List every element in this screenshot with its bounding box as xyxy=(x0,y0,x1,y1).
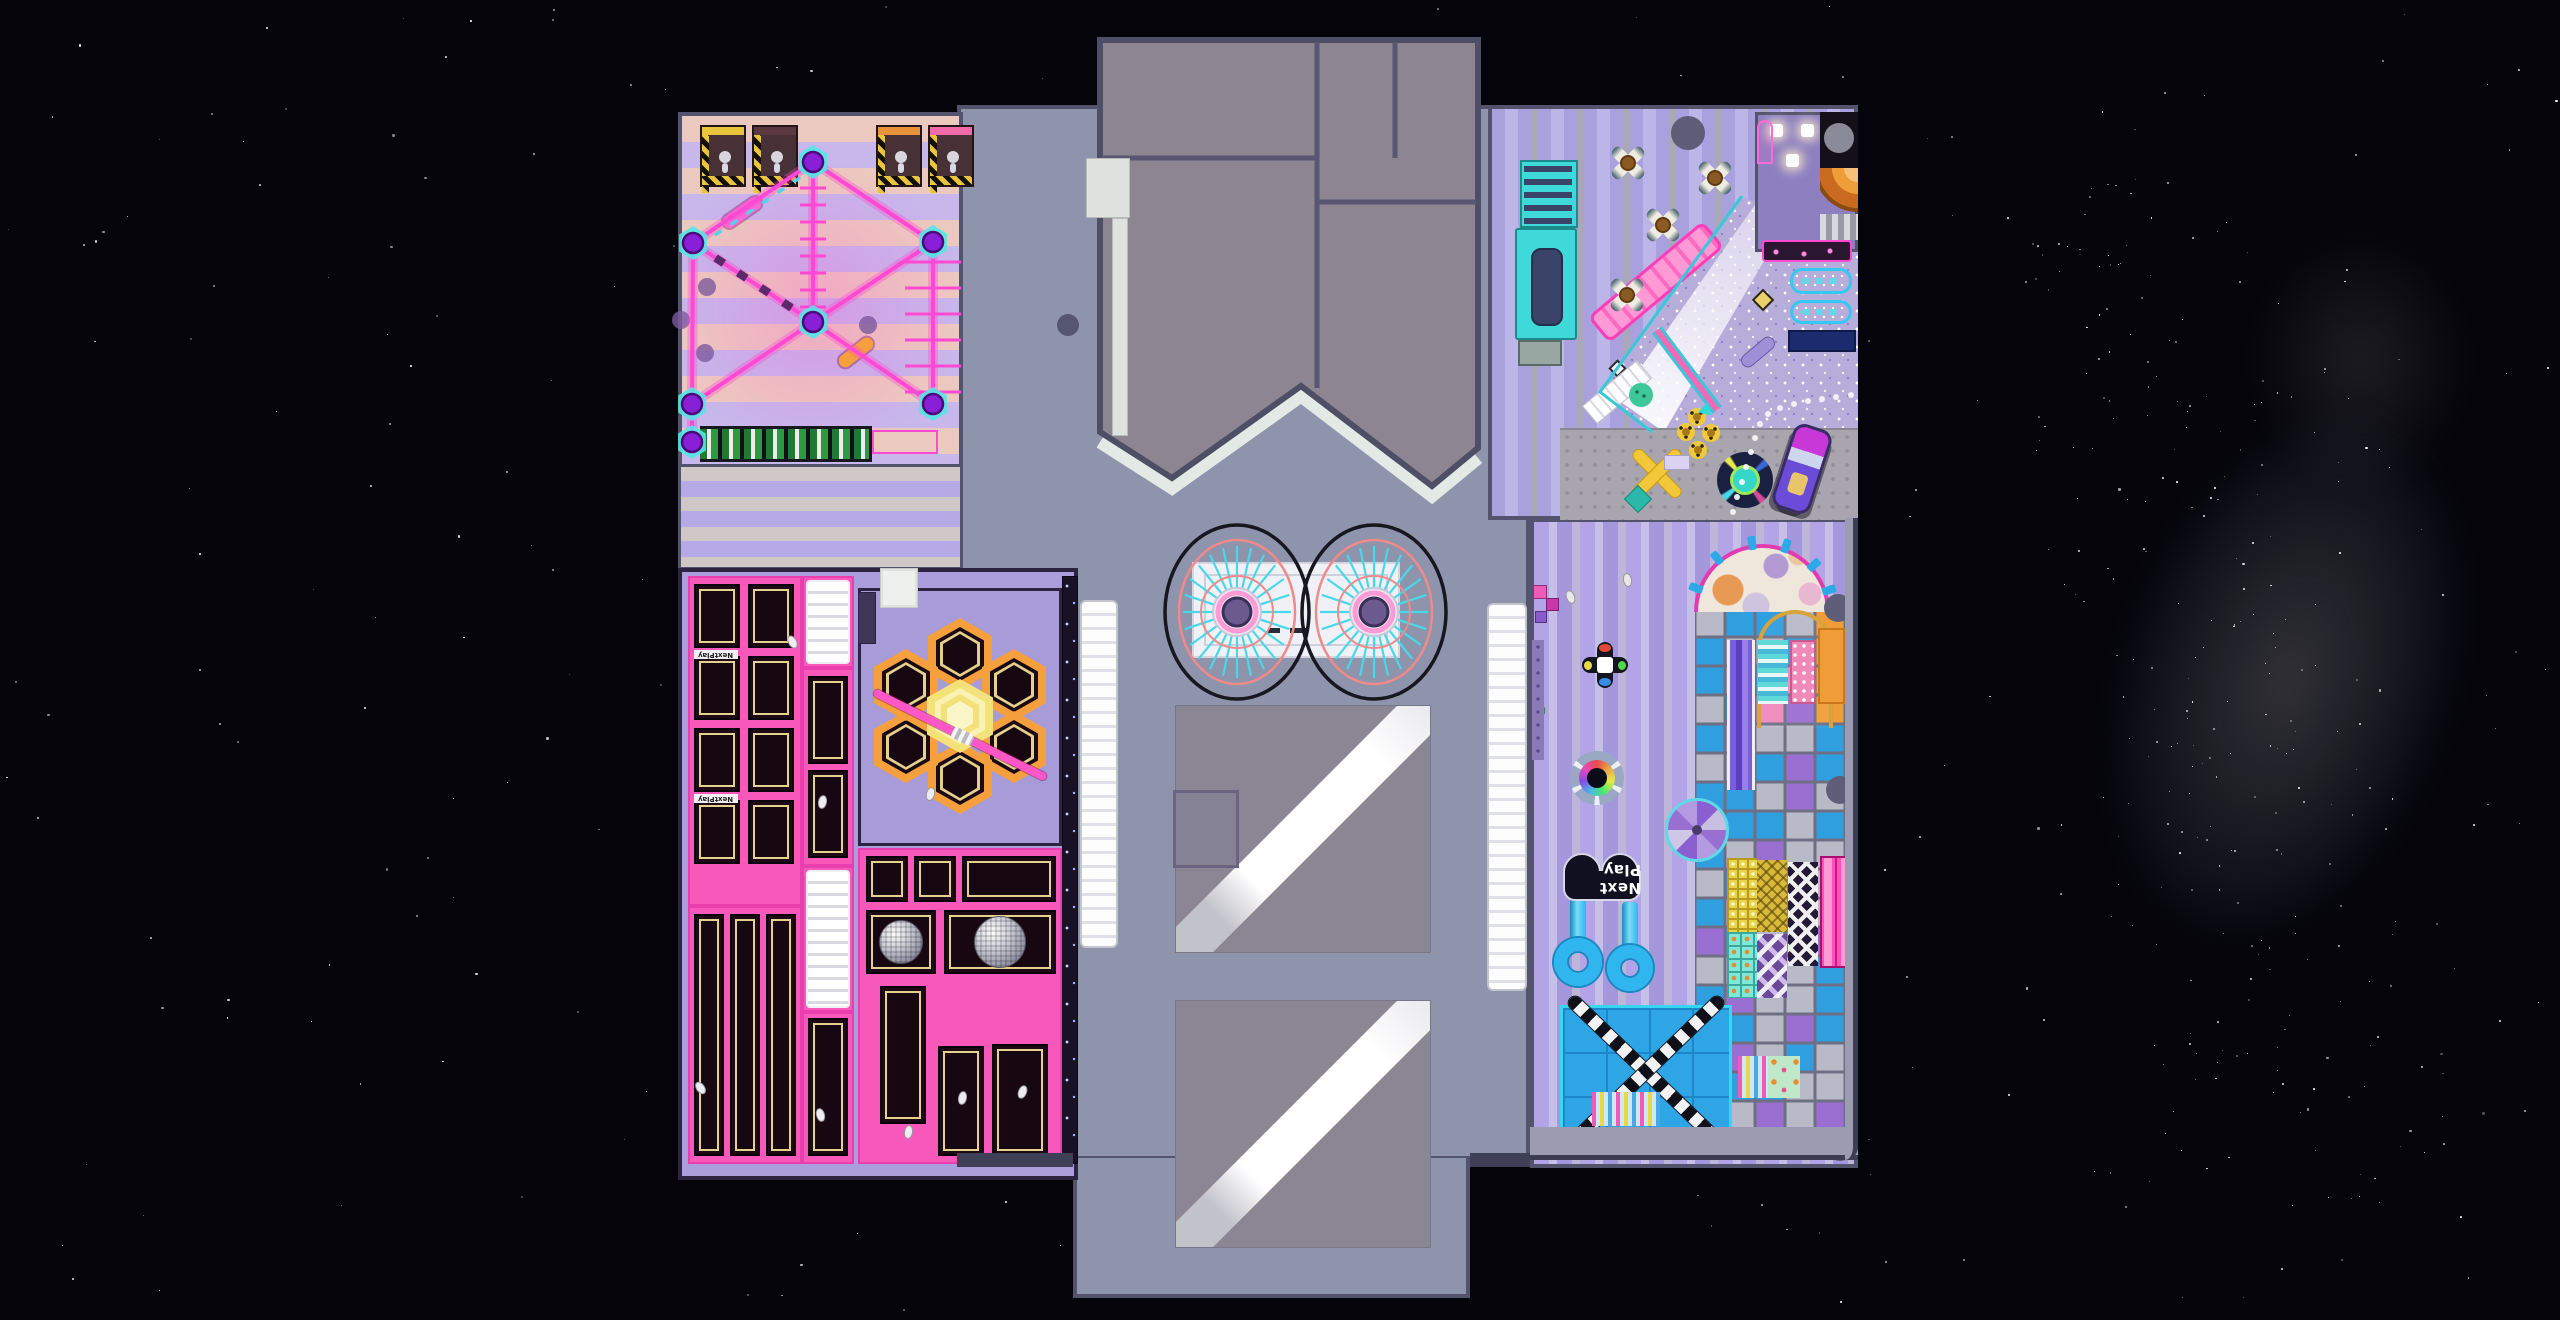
shelf-slat xyxy=(1524,166,1572,172)
flower-center xyxy=(1693,413,1701,421)
play-structure-cell xyxy=(1695,637,1725,666)
tube-slide-loop[interactable] xyxy=(1554,938,1602,986)
sparkle-wall xyxy=(1062,576,1078,1164)
climbing-ladder[interactable] xyxy=(700,426,872,462)
floor-dot xyxy=(859,316,877,334)
red-button xyxy=(1599,644,1611,652)
play-structure-cell xyxy=(1695,898,1725,927)
green-button xyxy=(1618,661,1626,670)
trampoline-bed xyxy=(880,986,926,1124)
trampoline-bed xyxy=(694,656,740,720)
teal-cone xyxy=(1698,401,1714,416)
person-icon xyxy=(719,151,731,163)
border-walkway xyxy=(1845,518,1858,1160)
neon-dashes xyxy=(1801,309,1843,314)
floor-dot xyxy=(672,311,690,329)
person-icon xyxy=(771,151,783,163)
play-structure-cell xyxy=(1695,695,1725,724)
play-structure-cell xyxy=(1755,811,1785,840)
kiosk-top-bar xyxy=(878,127,920,135)
person-icon xyxy=(895,151,907,163)
path-dot xyxy=(1765,411,1771,417)
quilted-bench-strip xyxy=(1080,600,1118,948)
shelf-slat xyxy=(1524,218,1572,224)
play-structure-cell xyxy=(1755,1101,1785,1130)
play-structure-cell xyxy=(1785,985,1815,1014)
play-structure-cell xyxy=(1755,1014,1785,1043)
play-cube xyxy=(1533,585,1547,599)
play-structure-cell xyxy=(1785,753,1815,782)
airbag-pad xyxy=(806,580,850,664)
flower-stool xyxy=(1677,423,1695,441)
play-panel-candy xyxy=(1738,1056,1768,1098)
play-structure-cell xyxy=(1815,1072,1845,1101)
shelf-slat xyxy=(1524,205,1572,211)
trampoline-bed xyxy=(748,728,794,792)
roof-walkway xyxy=(1112,218,1128,436)
kiosk-top-bar xyxy=(754,127,796,135)
person-icon xyxy=(898,163,904,173)
play-panel-tgrid xyxy=(1727,932,1757,998)
trampoline-bed xyxy=(748,800,794,864)
platform-label-mark xyxy=(1290,628,1306,633)
flower-stool xyxy=(1689,441,1707,459)
path-dot xyxy=(1757,421,1763,427)
path-dot xyxy=(1752,435,1758,441)
play-structure-cell xyxy=(1815,724,1845,753)
hazard-stripe xyxy=(930,176,972,185)
round-table xyxy=(1824,123,1854,153)
wave-slide-lanes[interactable] xyxy=(1727,640,1755,790)
wall-segment xyxy=(957,1153,1073,1167)
play-structure-cell xyxy=(1695,869,1725,898)
lit-table xyxy=(1786,154,1799,167)
quilted-bench-strip xyxy=(1487,603,1527,991)
play-structure-cell xyxy=(1695,666,1725,695)
pillar xyxy=(1671,116,1705,150)
person-icon xyxy=(774,163,780,173)
play-structure-cell xyxy=(1785,1101,1815,1130)
platform-label-mark xyxy=(1268,628,1280,633)
person-icon xyxy=(722,163,728,173)
play-panel-diam xyxy=(1757,934,1787,998)
hazard-stripe xyxy=(878,176,920,185)
lit-table xyxy=(1801,124,1814,137)
person-icon xyxy=(950,163,956,173)
disco-ball xyxy=(879,920,923,964)
play-cube xyxy=(1535,611,1547,623)
zone-stripe-band[interactable] xyxy=(678,464,963,570)
path-dot xyxy=(1730,509,1736,515)
play-panel-ygrid xyxy=(1727,858,1757,932)
play-structure-cell xyxy=(1815,1014,1845,1043)
kiosk-top-bar xyxy=(702,127,744,135)
path-dot xyxy=(1748,449,1754,455)
trampoline-bed xyxy=(914,856,956,902)
play-structure-cell xyxy=(1695,608,1725,637)
neon-dashes xyxy=(1801,278,1843,284)
trampoline-bed xyxy=(808,676,848,764)
ropes-kiosk xyxy=(928,125,974,187)
ramp-diagonal-stripe xyxy=(1175,1000,1431,1248)
play-structure-cell xyxy=(1785,724,1815,753)
neon-arcade-panel[interactable] xyxy=(1790,268,1852,294)
trampoline-bed xyxy=(730,914,760,1156)
path-dot xyxy=(1819,396,1825,402)
floor-dot xyxy=(698,278,716,296)
flower-center xyxy=(1682,428,1690,436)
building: NextPlayNextPlayNext Play xyxy=(0,0,2560,1320)
ropes-kiosk xyxy=(752,125,798,187)
navy-counter xyxy=(1788,330,1856,352)
flower-center xyxy=(1694,446,1702,454)
yellow-button xyxy=(1584,661,1592,670)
pillar xyxy=(1057,314,1079,336)
ride-platform-inner xyxy=(1204,574,1388,646)
play-structure-cell xyxy=(1785,782,1815,811)
play-panel-orange xyxy=(1818,628,1845,704)
wall-panel xyxy=(1532,640,1544,760)
neon-sign-frame xyxy=(1762,240,1852,262)
ladder-rail-outline xyxy=(872,430,938,454)
roof-walkway xyxy=(1086,158,1130,218)
path-dot xyxy=(1805,398,1811,404)
play-structure-cell xyxy=(1695,956,1725,985)
trampoline-bed xyxy=(808,770,848,858)
trampoline-bed xyxy=(694,584,740,648)
flower-stool xyxy=(1702,424,1720,442)
bed-label-text: NextPlay xyxy=(698,651,733,658)
play-structure-cell xyxy=(1755,753,1785,782)
play-structure-cell xyxy=(1785,1014,1815,1043)
pink-arch-decor xyxy=(1757,120,1773,164)
play-structure-cell xyxy=(1815,985,1845,1014)
candy-panel xyxy=(1592,1092,1660,1126)
desk-side-box xyxy=(1518,340,1562,366)
wall-segment xyxy=(1470,1153,1530,1167)
bed-label-strip: NextPlay xyxy=(694,794,738,803)
shelf-slat xyxy=(1524,192,1572,198)
play-structure-cell xyxy=(1785,811,1815,840)
hazard-stripe xyxy=(754,176,796,185)
airbag-pad xyxy=(806,870,850,1008)
desk-well xyxy=(1531,248,1563,326)
stair-ramp-block[interactable] xyxy=(1175,1000,1431,1248)
path-dot xyxy=(1743,464,1749,470)
path-dot xyxy=(1791,401,1797,407)
trampoline-bed xyxy=(808,1018,848,1156)
flower-center xyxy=(1707,429,1715,437)
shelf-slat xyxy=(1524,179,1572,185)
trampoline-bed xyxy=(748,656,794,720)
floor-dot xyxy=(696,344,714,362)
tube-slide-loop[interactable] xyxy=(1607,945,1653,991)
play-cube xyxy=(1546,598,1559,611)
hazard-stripe xyxy=(702,176,744,185)
silver-steps xyxy=(1820,214,1858,240)
play-panel-mint xyxy=(1768,1056,1800,1098)
button-toy-center xyxy=(1597,657,1613,673)
trampoline-bed xyxy=(694,728,740,792)
play-structure-cell xyxy=(1815,811,1845,840)
disco-ball xyxy=(974,916,1026,968)
play-card-table xyxy=(1664,455,1690,470)
blue-button xyxy=(1599,678,1611,686)
next-play-sign-label: Next Play xyxy=(1563,859,1641,899)
trampoline-bed xyxy=(694,914,724,1156)
car-seat xyxy=(1786,471,1809,497)
play-structure-cell xyxy=(1815,1101,1845,1130)
ropes-kiosk xyxy=(876,125,922,187)
person-icon xyxy=(947,151,959,163)
play-structure-cell xyxy=(1755,782,1785,811)
spiral-slide-hub xyxy=(1692,825,1702,835)
kiosk-top-bar xyxy=(930,127,972,135)
play-structure-cell xyxy=(1695,927,1725,956)
orange-slide-quarter xyxy=(1820,168,1858,212)
play-structure-cell xyxy=(1695,724,1725,753)
bed-label-text: NextPlay xyxy=(698,795,733,802)
play-panel-gnet xyxy=(1757,860,1787,932)
landing-block xyxy=(1173,790,1239,868)
play-structure-cell xyxy=(1755,724,1785,753)
play-structure-cell xyxy=(1695,753,1725,782)
path-dot xyxy=(1739,479,1745,485)
play-panel-tealstripe xyxy=(1758,640,1788,704)
back-shelves xyxy=(1520,160,1578,228)
spinner-core xyxy=(1587,768,1607,788)
neon-arcade-panel[interactable] xyxy=(1790,300,1852,324)
play-structure-cell xyxy=(1725,811,1755,840)
wall-block xyxy=(858,592,876,644)
green-mat xyxy=(1629,383,1653,407)
play-structure-cell xyxy=(1725,608,1755,637)
next-play-sign[interactable]: Next Play xyxy=(1563,853,1641,903)
trampoline-bed xyxy=(866,856,908,902)
trampoline-bed xyxy=(694,800,740,864)
path-dot xyxy=(1777,405,1783,411)
trampoline-bed xyxy=(766,914,796,1156)
tube-slide-stem xyxy=(1622,902,1638,950)
trampoline-bed xyxy=(992,1044,1048,1156)
border-walkway xyxy=(1530,1127,1858,1160)
play-structure-cell xyxy=(1815,1043,1845,1072)
play-panel-pinkdot xyxy=(1790,640,1816,704)
path-dot xyxy=(1848,392,1854,398)
bed-label-strip: NextPlay xyxy=(694,650,738,659)
trampoline-bed xyxy=(962,856,1056,902)
path-dot xyxy=(1833,394,1839,400)
ropes-kiosk xyxy=(700,125,746,187)
path-dot xyxy=(1734,494,1740,500)
step-block xyxy=(880,568,918,608)
play-panel-chevron xyxy=(1788,862,1818,966)
entertainment-center-floorplan: NextPlayNextPlayNext Play xyxy=(0,0,2560,1320)
